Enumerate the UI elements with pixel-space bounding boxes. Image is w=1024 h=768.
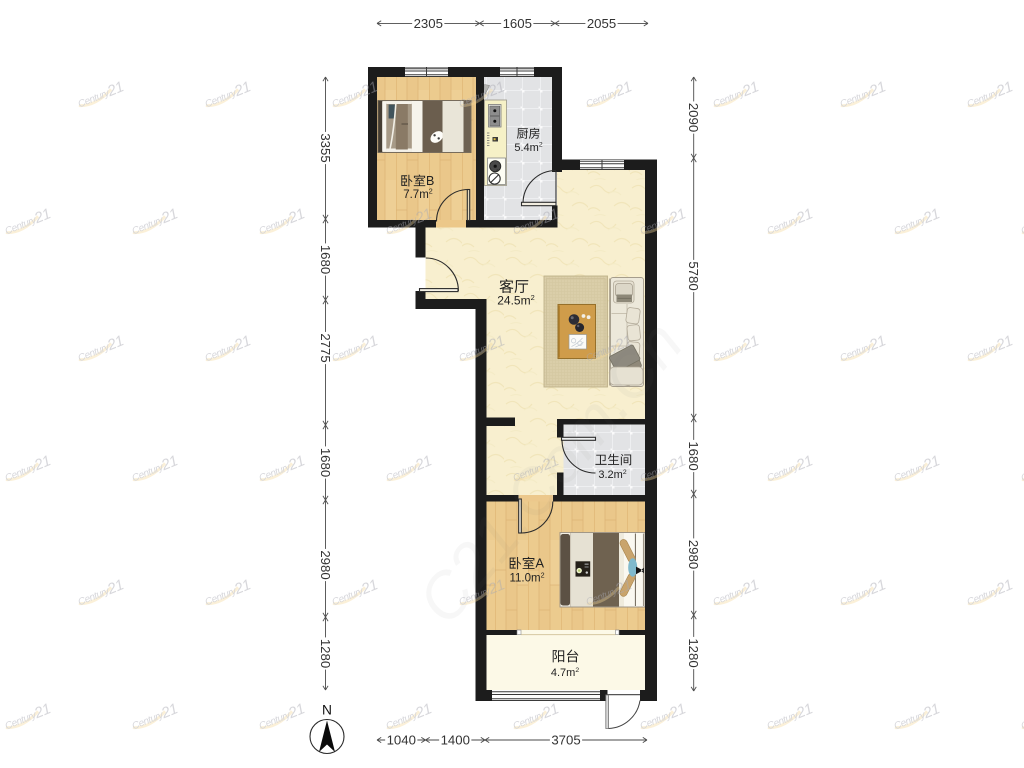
svg-text:2980: 2980	[318, 550, 333, 579]
svg-text:2055: 2055	[587, 16, 616, 31]
svg-text:24.5m2: 24.5m2	[497, 293, 535, 308]
svg-text:1680: 1680	[318, 448, 333, 477]
svg-text:3705: 3705	[551, 733, 580, 748]
svg-text:N: N	[322, 703, 332, 718]
svg-text:2305: 2305	[414, 16, 443, 31]
svg-text:1605: 1605	[503, 16, 532, 31]
svg-text:11.0m2: 11.0m2	[509, 571, 544, 584]
svg-text:A: A	[535, 556, 544, 571]
svg-text:1280: 1280	[686, 638, 701, 667]
svg-text:2980: 2980	[686, 540, 701, 569]
svg-text:5780: 5780	[686, 261, 701, 290]
svg-text:3.2m2: 3.2m2	[598, 469, 626, 481]
svg-text:7.7m2: 7.7m2	[403, 188, 433, 201]
svg-text:1680: 1680	[686, 441, 701, 470]
svg-text:3355: 3355	[318, 133, 333, 162]
svg-text:1280: 1280	[318, 639, 333, 668]
svg-text:4.7m2: 4.7m2	[551, 667, 579, 679]
svg-text:2090: 2090	[686, 103, 701, 132]
svg-text:B: B	[426, 174, 434, 188]
svg-text:5.4m2: 5.4m2	[514, 142, 542, 154]
svg-text:2775: 2775	[318, 333, 333, 362]
svg-text:1680: 1680	[318, 245, 333, 274]
svg-text:1400: 1400	[441, 733, 470, 748]
svg-text:1040: 1040	[387, 733, 416, 748]
